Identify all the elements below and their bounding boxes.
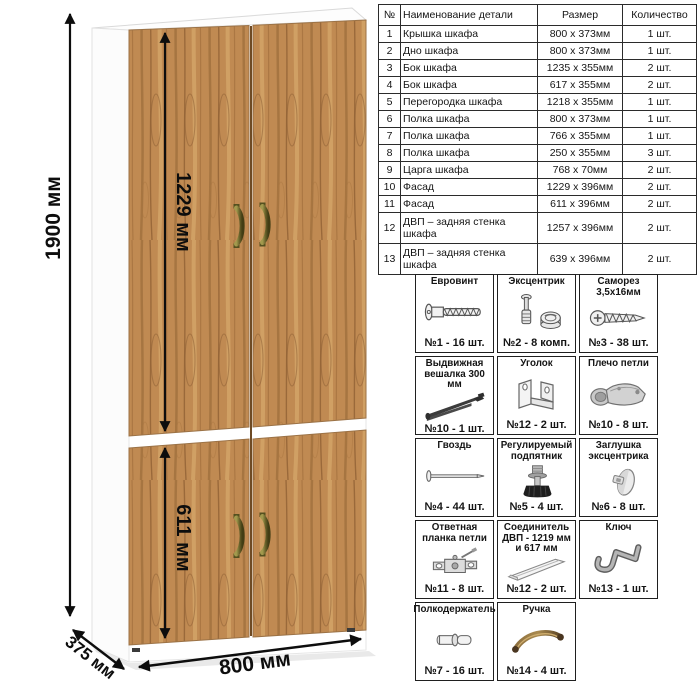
wardrobe-drawing: 1900 мм 1229 мм 611 мм 800 мм 375 мм	[0, 0, 400, 700]
hardware-item-count: №12 - 2 шт.	[506, 583, 566, 595]
hardware-item-count: №14 - 4 шт.	[506, 665, 566, 677]
hardware-item-title: Ручка	[522, 605, 550, 616]
hardware-item-title: Выдвижная вешалка 300 мм	[417, 359, 492, 391]
hardware-item-hinge-plate: Ответная планка петли №11 - 8 шт.	[415, 520, 494, 599]
hardware-item-count: №12 - 2 шт.	[506, 419, 566, 431]
hardware-item-title: Саморез 3,5х16мм	[581, 277, 656, 298]
hardware-item-count: №3 - 38 шт.	[588, 337, 648, 349]
hardware-item-hex-key: Ключ №13 - 1 шт.	[579, 520, 658, 599]
table-row: 13ДВП – задняя стенка шкафа639 x 396мм2 …	[379, 244, 697, 275]
hardware-grid-empty-cell	[579, 602, 658, 681]
cam-cap-icon	[581, 462, 656, 501]
handle-icon	[499, 616, 574, 666]
cam-lock-icon	[499, 288, 574, 338]
table-row: 6Полка шкафа800 x 373мм1 шт.	[379, 111, 697, 128]
hardware-item-title: Ответная планка петли	[417, 523, 492, 544]
table-row: 7Полка шкафа766 x 355мм1 шт.	[379, 128, 697, 145]
adjustable-foot-icon	[499, 462, 574, 501]
hardware-item-nail: Гвоздь №4 - 44 шт.	[415, 438, 494, 517]
hex-key-icon	[581, 534, 656, 584]
hardware-item-title: Заглушка эксцентрика	[581, 441, 656, 462]
nail-icon	[417, 452, 492, 502]
table-row: 5Перегородка шкафа1218 x 355мм1 шт.	[379, 94, 697, 111]
hardware-item-title: Плечо петли	[588, 359, 649, 370]
hardware-item-cam-cap: Заглушка эксцентрика №6 - 8 шт.	[579, 438, 658, 517]
hardware-item-adjustable-foot: Регулируемый подпятник №5 - 4 шт.	[497, 438, 576, 517]
hardware-item-count: №13 - 1 шт.	[588, 583, 648, 595]
pullout-hanger-icon	[417, 391, 492, 423]
hardware-item-corner-bracket: Уголок №12 - 2 шт.	[497, 356, 576, 435]
hardware-item-hinge-arm: Плечо петли №10 - 8 шт.	[579, 356, 658, 435]
hardware-item-count: №4 - 44 шт.	[424, 501, 484, 513]
euroscrew-icon	[417, 288, 492, 338]
hardware-item-handle: Ручка №14 - 4 шт.	[497, 602, 576, 681]
hardware-item-title: Евровинт	[431, 277, 478, 288]
table-row: 11Фасад611 x 396мм2 шт.	[379, 196, 697, 213]
hardware-item-count: №2 - 8 комп.	[503, 337, 570, 349]
table-row: 4Бок шкафа617 x 355мм2 шт.	[379, 77, 697, 94]
hardware-item-count: №11 - 8 шт.	[425, 583, 485, 595]
hardware-item-title: Полкодержатель	[413, 605, 495, 616]
dim-lower-door-label: 611 мм	[172, 504, 194, 571]
hinge-plate-icon	[417, 544, 492, 583]
hardware-grid: Евровинт №1 - 16 шт. Эксцентрик	[415, 274, 658, 681]
wardrobe-foot-right	[347, 628, 355, 632]
table-row: 3Бок шкафа1235 x 355мм2 шт.	[379, 60, 697, 77]
dim-total-height-label: 1900 мм	[42, 176, 65, 260]
hardware-item-count: №1 - 16 шт.	[424, 337, 484, 349]
wardrobe-foot-left	[132, 648, 140, 652]
hardware-item-count: №10 - 1 шт.	[424, 423, 484, 435]
hinge-arm-icon	[581, 370, 656, 420]
hardware-item-shelf-pin: Полкодержатель №7 - 16 шт.	[415, 602, 494, 681]
col-header-qty: Количество	[623, 5, 697, 26]
hdf-connector-icon	[499, 555, 574, 584]
hardware-item-hdf-connector: Соединитель ДВП - 1219 мм и 617 мм №12 -…	[497, 520, 576, 599]
table-row: 12ДВП – задняя стенка шкафа1257 x 396мм2…	[379, 213, 697, 244]
table-row: 8Полка шкафа250 x 355мм3 шт.	[379, 145, 697, 162]
table-row: 2Дно шкафа800 x 373мм1 шт.	[379, 43, 697, 60]
parts-table-header-row: № Наименование детали Размер Количество	[379, 5, 697, 26]
hardware-item-title: Регулируемый подпятник	[499, 441, 574, 462]
hardware-item-count: №7 - 16 шт.	[424, 665, 484, 677]
screw-icon	[581, 298, 656, 337]
hardware-item-title: Гвоздь	[437, 441, 471, 452]
col-header-size: Размер	[538, 5, 623, 26]
col-header-name: Наименование детали	[401, 5, 538, 26]
table-row: 1Крышка шкафа800 x 373мм1 шт.	[379, 26, 697, 43]
shelf-pin-icon	[417, 616, 492, 666]
hardware-item-count: №6 - 8 шт.	[592, 501, 646, 513]
hardware-item-count: №10 - 8 шт.	[588, 419, 648, 431]
dim-upper-door-label: 1229 мм	[172, 172, 194, 252]
hardware-item-pullout-hanger: Выдвижная вешалка 300 мм №10 - 1 шт.	[415, 356, 494, 435]
hardware-item-euroscrew: Евровинт №1 - 16 шт.	[415, 274, 494, 353]
corner-bracket-icon	[499, 370, 574, 420]
hardware-item-screw: Саморез 3,5х16мм №3 - 38 шт.	[579, 274, 658, 353]
hardware-item-title: Эксцентрик	[508, 277, 564, 288]
parts-table: № Наименование детали Размер Количество …	[378, 4, 697, 275]
hardware-item-cam-lock: Эксцентрик №2 - 8 комп.	[497, 274, 576, 353]
hardware-item-title: Соединитель ДВП - 1219 мм и 617 мм	[499, 523, 574, 555]
col-header-num: №	[379, 5, 401, 26]
hardware-item-count: №5 - 4 шт.	[510, 501, 564, 513]
table-row: 10Фасад1229 x 396мм2 шт.	[379, 179, 697, 196]
wardrobe-left-side-panel	[92, 28, 129, 662]
hardware-item-title: Ключ	[606, 523, 632, 534]
hardware-item-title: Уголок	[520, 359, 552, 370]
table-row: 9Царга шкафа768 x 70мм2 шт.	[379, 162, 697, 179]
